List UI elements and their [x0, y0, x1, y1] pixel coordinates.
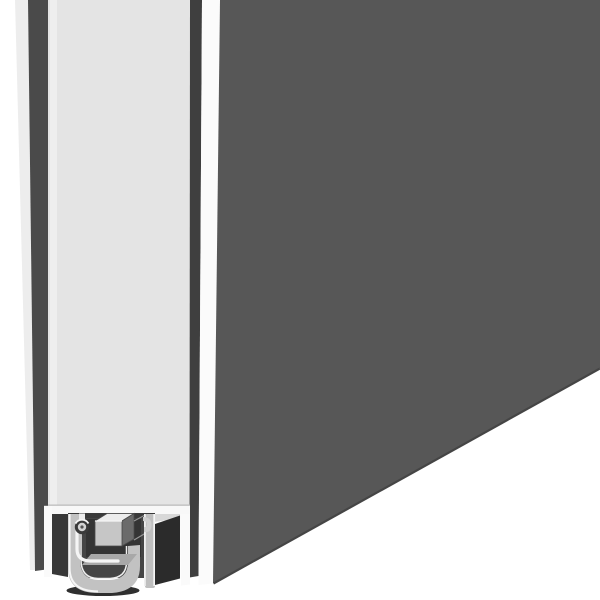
- mechanism-block-front-face: [95, 521, 122, 546]
- right-wall-left-highlight: [144, 514, 146, 586]
- illustration-canvas: [0, 0, 600, 600]
- right-wall-right-highlight: [153, 514, 155, 586]
- pivot-pin-center: [80, 525, 83, 528]
- door-seal-cutaway-render: [0, 0, 600, 600]
- door-bottom-highlight-band: [44, 506, 190, 514]
- seal-receding-dark-face: [155, 516, 180, 586]
- pin-mount-highlight: [79, 514, 85, 520]
- door-edge-left-highlight: [50, 0, 57, 506]
- seal-receding-white-strip: [180, 514, 190, 586]
- under-door-shadow-panel: [52, 514, 68, 577]
- under-door-corner-highlight: [44, 506, 52, 577]
- door-edge-face: [48, 0, 190, 506]
